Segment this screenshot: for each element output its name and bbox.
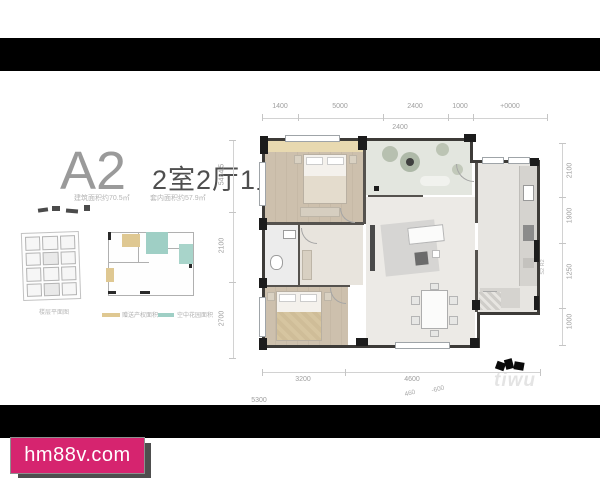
unit-name: A2 (60, 144, 126, 198)
gift-area-teal-patch (146, 232, 168, 254)
dimension-tick (229, 358, 236, 359)
coffee-table-icon (414, 251, 428, 265)
dimension-tick (547, 114, 548, 121)
window (395, 342, 450, 349)
column (530, 158, 539, 166)
interior-wall (368, 195, 423, 197)
tv-console-icon (370, 225, 375, 271)
gift-area-teal-patch (179, 244, 193, 264)
appliance-icon (523, 258, 534, 268)
interior-wall (264, 285, 350, 287)
dimension-tick (229, 282, 236, 283)
letterbox-bottom-bar (0, 405, 600, 438)
interior-wall (298, 225, 300, 285)
floorplate-unit-cell (60, 235, 76, 249)
dim-label: 5484.5 (219, 155, 226, 195)
dimension-tick (559, 345, 566, 346)
cabinet-icon (302, 250, 312, 280)
window (482, 157, 504, 164)
dimension-tick (540, 369, 541, 376)
dimension-tick (262, 114, 263, 121)
site-watermark-text: hm88v.com (24, 444, 130, 467)
dim-label: +0000 (490, 103, 530, 110)
column-marker (374, 186, 379, 191)
dimension-tick (559, 243, 566, 244)
dining-table-icon (421, 290, 448, 329)
dimension-line (262, 118, 548, 119)
dimension-tick (262, 369, 263, 376)
dim-label: 1000 (440, 103, 480, 110)
column (259, 338, 267, 350)
plant-icon (382, 146, 398, 162)
column (259, 278, 267, 288)
dresser-icon (300, 207, 340, 217)
floorplate-unit-cell (26, 267, 42, 281)
pillow-icon (300, 294, 317, 302)
floorplate-unit-cell (61, 282, 77, 296)
dimension-line (562, 143, 563, 345)
planter-icon (406, 158, 414, 166)
chair-icon (430, 330, 439, 337)
dim-label: 1900 (567, 196, 574, 236)
dim-label: 5300 (244, 397, 274, 404)
blanket-icon (304, 176, 346, 203)
floorplate-unit-cell (25, 236, 41, 250)
chair-icon (411, 296, 420, 305)
legend-swatch-tan (102, 313, 120, 317)
dimension-tick (229, 140, 236, 141)
dim-label-small: S2 R2 (540, 252, 546, 282)
chair-icon (449, 316, 458, 325)
wall (477, 312, 540, 315)
column (470, 338, 479, 348)
dimension-tick (298, 114, 299, 121)
ink-smudge (52, 206, 60, 211)
dimension-tick (229, 212, 236, 213)
dimension-tick (559, 143, 566, 144)
dimension-tick (448, 114, 449, 121)
pillow-icon (306, 157, 323, 165)
wall (537, 160, 540, 315)
sink-icon (283, 230, 296, 239)
dim-label: 5000 (320, 103, 360, 110)
floorplate-unit-cell (27, 283, 43, 297)
ink-smudge (84, 205, 90, 211)
nightstand-icon (294, 155, 302, 164)
gift-area-tan-patch (106, 268, 114, 282)
floorplate-unit-cell (42, 236, 58, 250)
dimension-tick (473, 114, 474, 121)
dim-label: 1400 (260, 103, 300, 110)
dim-label: -600 (424, 383, 453, 397)
pillow-icon (279, 294, 296, 302)
plant-icon (436, 143, 449, 156)
floorplate-unit-cell (43, 251, 59, 265)
window (259, 162, 266, 206)
stepping-path (420, 176, 450, 186)
kitchen-sink-icon (523, 185, 534, 201)
dim-label: 2700 (219, 299, 226, 339)
ink-smudge (66, 208, 78, 213)
column (259, 218, 267, 230)
column (358, 136, 367, 150)
window (259, 297, 266, 337)
side-table-icon (432, 250, 440, 258)
dim-label: 3200 (283, 376, 323, 383)
toilet-icon (270, 255, 283, 270)
floorplate-unit-cell (44, 282, 60, 296)
unit-keyplan-thumbnail (100, 228, 200, 302)
dim-label: 1000 (567, 302, 574, 342)
chair-icon (430, 283, 439, 290)
dim-label: 2100 (219, 226, 226, 266)
blanket-icon (277, 312, 321, 340)
legend-label-teal: 空中花园面积 (177, 310, 213, 319)
dimension-tick (383, 114, 384, 121)
column (472, 300, 480, 310)
keyplan-wall-line (109, 262, 149, 263)
column (260, 136, 268, 154)
column (464, 134, 476, 142)
floorplate-thumbnail (21, 231, 81, 301)
legend-swatch-teal (158, 313, 174, 317)
ink-smudge (38, 207, 48, 212)
pillow-icon (327, 157, 344, 165)
nightstand-icon (349, 155, 357, 164)
dimension-tick (345, 369, 346, 376)
dim-label-inner: 2400 (385, 124, 415, 131)
dim-label: 4600 (392, 376, 432, 383)
column (534, 240, 539, 262)
floorplate-unit-cell (61, 266, 77, 280)
column (534, 296, 539, 310)
floorplate-caption: 楼层平面图 (24, 307, 84, 316)
dim-label: 460 (398, 387, 423, 400)
plan-watermark-text: tiwu (494, 370, 536, 392)
interior-wall (475, 163, 478, 223)
floorplate-unit-cell (43, 267, 59, 281)
chair-icon (449, 296, 458, 305)
dim-label: 1250 (567, 252, 574, 292)
dimension-tick (559, 308, 566, 309)
keyplan-wall (108, 291, 116, 294)
keyplan-wall (108, 232, 111, 240)
floorplate-unit-cell (26, 252, 42, 266)
gift-area-tan-patch (122, 234, 140, 247)
nightstand-icon (267, 292, 275, 301)
floorplate-unit-cell (60, 251, 76, 265)
interior-wall (363, 140, 366, 224)
dim-label: 2400 (395, 103, 435, 110)
chair-icon (411, 316, 420, 325)
interior-wall (264, 222, 364, 225)
hatched-platform (479, 292, 501, 310)
column (356, 338, 368, 346)
dimension-line (233, 140, 234, 358)
site-watermark-tag: hm88v.com (10, 437, 145, 474)
dimension-tick (559, 197, 566, 198)
stove-icon (523, 225, 534, 241)
legend-label-tan: 赠送产权面积 (122, 310, 158, 319)
inner-area-text: 套内面积约57.9㎡ (150, 193, 206, 203)
window (285, 135, 340, 142)
building-area-text: 建筑面积约70.5㎡ (74, 193, 130, 203)
screenshot-root: A2 2室2厅1卫 建筑面积约70.5㎡ 套内面积约57.9㎡ 楼层平面图 (0, 0, 600, 480)
dim-label: 2100 (567, 151, 574, 191)
letterbox-top-bar (0, 38, 600, 71)
window (508, 157, 530, 164)
keyplan-wall (140, 291, 150, 294)
balcony-1 (265, 141, 363, 152)
